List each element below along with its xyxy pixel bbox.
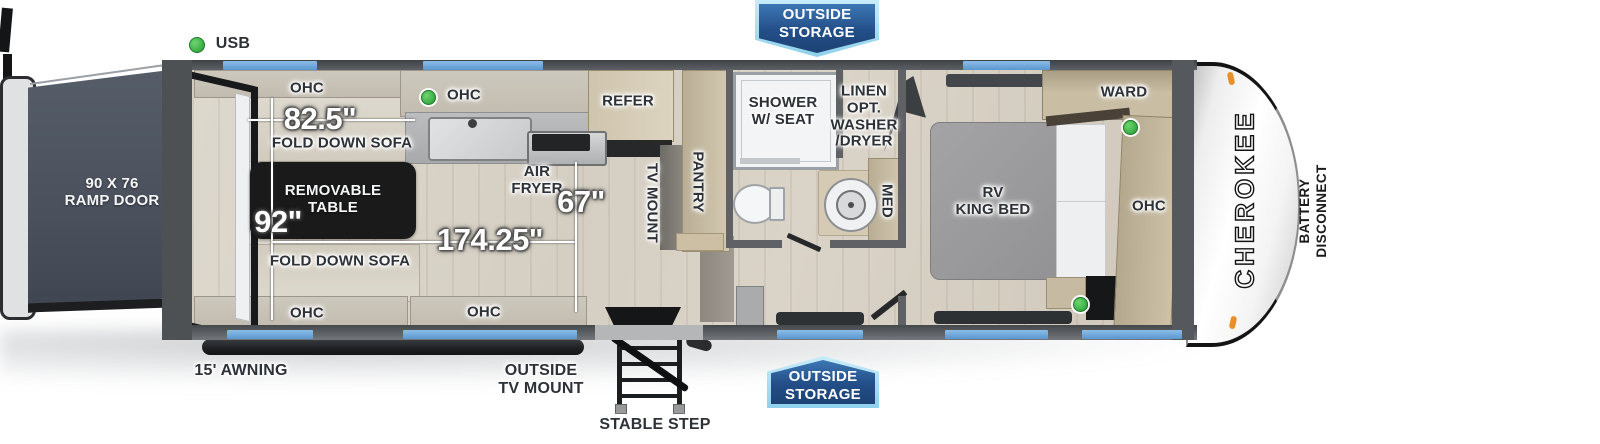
wall-front-right bbox=[1172, 60, 1194, 340]
pantry-shelf bbox=[676, 233, 724, 251]
ramp-door-label-line1: 90 X 76 bbox=[65, 176, 160, 193]
window-strip bbox=[423, 61, 543, 70]
label-ohc-kitchen: OHC bbox=[447, 88, 481, 105]
step-rung bbox=[617, 394, 682, 398]
usb-dot-icon bbox=[421, 90, 436, 105]
label-bed-line1: RV bbox=[956, 185, 1031, 202]
air-fryer-top-icon bbox=[532, 134, 590, 151]
label-awning: 15' AWNING bbox=[194, 362, 287, 380]
label-ohc-garage-bottom-right: OHC bbox=[467, 305, 501, 322]
battery-disconnect-label: BATTERY DISCONNECT bbox=[1297, 164, 1331, 257]
entry-door-platform bbox=[595, 325, 703, 340]
bath-sink-icon bbox=[824, 178, 878, 232]
window-strip bbox=[777, 330, 863, 339]
battery-label-line2: DISCONNECT bbox=[1314, 164, 1331, 257]
shower-drain-strip bbox=[740, 158, 800, 164]
kitchen-faucet-icon bbox=[468, 119, 477, 128]
usb-dot-icon bbox=[189, 37, 205, 53]
label-bed: RV KING BED bbox=[956, 185, 1031, 219]
label-med: MED bbox=[878, 184, 895, 218]
badge-outside-storage-top: OUTSIDE STORAGE bbox=[755, 0, 879, 57]
entry-step-box bbox=[736, 286, 764, 326]
label-ward: WARD bbox=[1101, 85, 1148, 102]
label-air-fryer-line2: FRYER bbox=[511, 181, 562, 198]
window-strip bbox=[227, 330, 313, 339]
label-linen-line1: LINEN bbox=[830, 83, 897, 100]
label-linen: LINEN OPT. WASHER /DRYER bbox=[830, 83, 897, 150]
label-ohc-bedroom: OHC bbox=[1132, 199, 1166, 216]
step-foot bbox=[615, 404, 627, 414]
label-linen-line4: /DRYER bbox=[830, 134, 897, 151]
brand-cherokee: CHEROKEE bbox=[1230, 109, 1261, 288]
dim-sofa-width: 82.5" bbox=[284, 101, 357, 137]
label-ohc-garage-bottom-left: OHC bbox=[290, 306, 324, 323]
label-tv-mount: TV MOUNT bbox=[643, 163, 660, 243]
toilet-tank bbox=[769, 187, 785, 221]
dim-counter: 67" bbox=[557, 184, 605, 220]
pillow-divider bbox=[1057, 201, 1105, 202]
badge-top-line2: STORAGE bbox=[779, 24, 855, 42]
label-outside-tv-line2: TV MOUNT bbox=[498, 380, 583, 398]
ohc-cabinet-bedroom bbox=[1113, 115, 1180, 329]
window-strip bbox=[403, 330, 577, 339]
badge-bottom-line2: STORAGE bbox=[785, 386, 861, 404]
toilet-icon bbox=[733, 183, 783, 221]
label-sofa-top: FOLD DOWN SOFA bbox=[272, 136, 412, 153]
hall-bench bbox=[776, 312, 864, 325]
ramp-frame-corner-bar-top bbox=[0, 8, 13, 53]
label-air-fryer: AIR FRYER bbox=[511, 164, 562, 198]
battery-label-line1: BATTERY bbox=[1297, 164, 1314, 257]
stable-step-icon bbox=[614, 330, 714, 414]
kitchen-sink-icon bbox=[428, 117, 532, 161]
bedroom-wall-stub bbox=[898, 296, 906, 325]
label-outside-tv-mount: OUTSIDE TV MOUNT bbox=[498, 362, 583, 398]
window-strip bbox=[223, 61, 317, 70]
label-shower: SHOWER W/ SEAT bbox=[749, 95, 818, 129]
garage-screen-strip bbox=[235, 93, 250, 323]
label-stable-step: STABLE STEP bbox=[599, 416, 710, 434]
rv-floorplan-canvas: 90 X 76 RAMP DOOR USB REMOVABLE TABLE OH… bbox=[0, 0, 1600, 444]
badge-top-line1: OUTSIDE bbox=[783, 6, 852, 24]
bath-wall-bottom-right bbox=[830, 240, 906, 248]
label-linen-line3: WASHER bbox=[830, 117, 897, 134]
bath-wall-left bbox=[726, 70, 733, 245]
wall-rear-left bbox=[162, 60, 192, 340]
label-outside-tv-line1: OUTSIDE bbox=[498, 362, 583, 380]
label-pantry: PANTRY bbox=[689, 151, 706, 212]
dim-garage-length: 174.25" bbox=[437, 222, 543, 258]
window-strip bbox=[963, 61, 1050, 70]
label-bed-line2: KING BED bbox=[956, 202, 1031, 219]
label-shower-line1: SHOWER bbox=[749, 95, 818, 112]
usb-label: USB bbox=[216, 35, 250, 53]
ramp-door-label-line2: RAMP DOOR bbox=[65, 193, 160, 210]
label-ohc-garage-top: OHC bbox=[290, 81, 324, 98]
label-sofa-bottom: FOLD DOWN SOFA bbox=[270, 254, 410, 271]
ramp-door-label: 90 X 76 RAMP DOOR bbox=[65, 176, 160, 210]
usb-dot-icon bbox=[1073, 297, 1088, 312]
entry-door-mat bbox=[605, 307, 681, 326]
label-air-fryer-line1: AIR bbox=[511, 164, 562, 181]
step-foot bbox=[673, 404, 685, 414]
awning-bar bbox=[202, 339, 584, 355]
removable-table-label: REMOVABLE TABLE bbox=[285, 183, 382, 217]
bath-wall-bottom-left bbox=[726, 240, 782, 248]
window-strip bbox=[945, 330, 1048, 339]
label-shower-line2: W/ SEAT bbox=[749, 112, 818, 129]
bed-shelf bbox=[946, 74, 1050, 87]
bath-sink-drain bbox=[848, 202, 854, 208]
bedroom-wall bbox=[898, 70, 906, 248]
usb-dot-icon bbox=[1123, 120, 1138, 135]
label-refer: REFER bbox=[602, 94, 654, 111]
window-strip bbox=[1082, 330, 1182, 339]
removable-table-label-line2: TABLE bbox=[285, 200, 382, 217]
label-linen-line2: OPT. bbox=[830, 100, 897, 117]
removable-table-label-line1: REMOVABLE bbox=[285, 183, 382, 200]
badge-bottom-line1: OUTSIDE bbox=[789, 368, 858, 386]
bedroom-bench bbox=[934, 311, 1072, 324]
badge-outside-storage-bottom: OUTSIDE STORAGE bbox=[767, 356, 879, 408]
bed-pillows bbox=[1056, 124, 1106, 278]
